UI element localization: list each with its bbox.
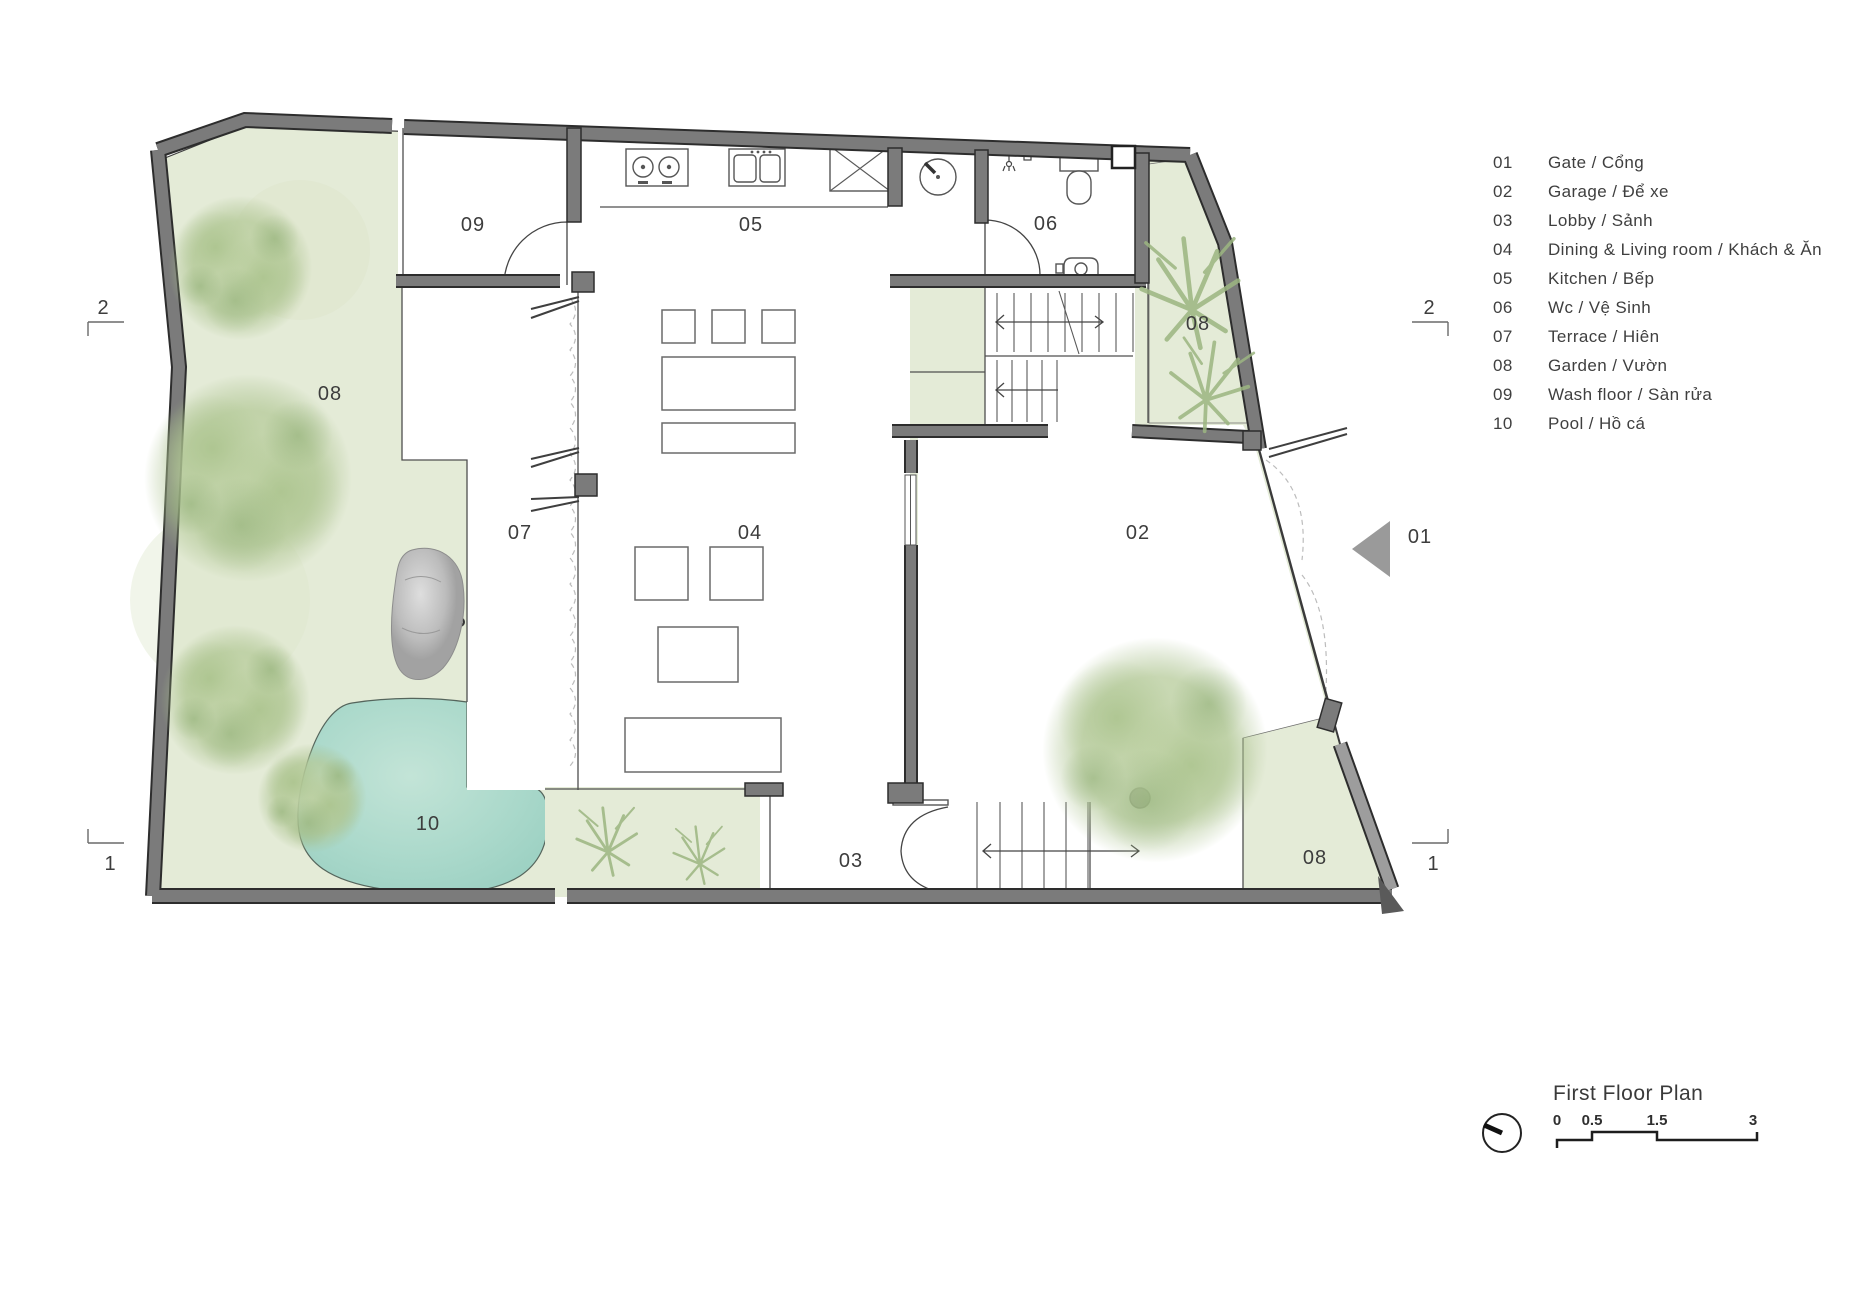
- legend-item: 02Garage / Để xe: [1493, 177, 1822, 206]
- legend-item-label: Garden / Vườn: [1548, 356, 1667, 375]
- room-label-wash-floor: 09: [461, 214, 485, 236]
- legend-item-number: 07: [1493, 322, 1548, 351]
- legend-item-number: 05: [1493, 264, 1548, 293]
- scale-bar: 0 0.5 1.5 3: [1553, 1112, 1757, 1148]
- legend-item-label: Pool / Hồ cá: [1548, 414, 1645, 433]
- north-indicator: [1483, 1114, 1521, 1152]
- legend-item: 01Gate / Cổng: [1493, 148, 1822, 177]
- room-label-pool: 10: [416, 813, 440, 835]
- legend-item-number: 01: [1493, 148, 1548, 177]
- gate-post-top: [1243, 431, 1261, 450]
- room-label-garden-top-right: 08: [1186, 313, 1210, 335]
- legend-item-number: 02: [1493, 177, 1548, 206]
- wall-window: [1112, 146, 1135, 168]
- legend-item-label: Gate / Cổng: [1548, 153, 1644, 172]
- legend-item: 10Pool / Hồ cá: [1493, 409, 1822, 438]
- washing-machine: [920, 159, 956, 195]
- legend-item-number: 03: [1493, 206, 1548, 235]
- section-marker-1-left: 1: [104, 853, 115, 875]
- room-label-garden-bottom-right: 08: [1303, 847, 1327, 869]
- room-label-terrace: 07: [508, 522, 532, 544]
- garage-window: [905, 475, 916, 545]
- legend-item-label: Wc / Vệ Sinh: [1548, 298, 1651, 317]
- room-label-dining-living: 04: [738, 522, 762, 544]
- legend-item-number: 08: [1493, 351, 1548, 380]
- legend-item: 06Wc / Vệ Sinh: [1493, 293, 1822, 322]
- scale-tick-3: 3: [1749, 1112, 1757, 1129]
- scale-tick-0: 0: [1553, 1112, 1561, 1129]
- garden-strip-bottom: [545, 787, 760, 897]
- legend-item-number: 09: [1493, 380, 1548, 409]
- gate-label: 01: [1408, 526, 1432, 548]
- scale-tick-15: 1.5: [1647, 1112, 1668, 1129]
- section-marker-1-right: 1: [1427, 853, 1438, 875]
- legend-item-label: Lobby / Sảnh: [1548, 211, 1653, 230]
- legend-item: 03Lobby / Sảnh: [1493, 206, 1822, 235]
- legend-item-number: 06: [1493, 293, 1548, 322]
- legend-item-label: Kitchen / Bếp: [1548, 269, 1654, 288]
- legend-item-label: Dining & Living room / Khách & Ăn: [1548, 240, 1822, 259]
- room-label-garden-left: 08: [318, 383, 342, 405]
- plan-title: First Floor Plan: [1553, 1082, 1703, 1106]
- legend-item: 08Garden / Vườn: [1493, 351, 1822, 380]
- legend: 01Gate / Cổng 02Garage / Để xe 03Lobby /…: [1493, 148, 1822, 438]
- legend-item: 07Terrace / Hiên: [1493, 322, 1822, 351]
- room-label-garage: 02: [1126, 522, 1150, 544]
- legend-item-number: 10: [1493, 409, 1548, 438]
- gate-direction-triangle: [1352, 521, 1390, 577]
- legend-item: 09Wash floor / Sàn rửa: [1493, 380, 1822, 409]
- scale-tick-05: 0.5: [1582, 1112, 1603, 1129]
- section-marker-2-left: 2: [97, 297, 108, 319]
- legend-item-number: 04: [1493, 235, 1548, 264]
- legend-item: 05Kitchen / Bếp: [1493, 264, 1822, 293]
- room-label-lobby: 03: [839, 850, 863, 872]
- legend-item-label: Wash floor / Sàn rửa: [1548, 385, 1712, 404]
- legend-item-label: Terrace / Hiên: [1548, 327, 1659, 346]
- toilet-bowl: [1067, 171, 1091, 204]
- room-label-kitchen: 05: [739, 214, 763, 236]
- refrigerator: [830, 146, 890, 191]
- legend-item: 04Dining & Living room / Khách & Ăn: [1493, 235, 1822, 264]
- section-marker-2-right: 2: [1423, 297, 1434, 319]
- terrace-column: [575, 474, 597, 496]
- legend-item-label: Garage / Để xe: [1548, 182, 1669, 201]
- room-label-wc: 06: [1034, 213, 1058, 235]
